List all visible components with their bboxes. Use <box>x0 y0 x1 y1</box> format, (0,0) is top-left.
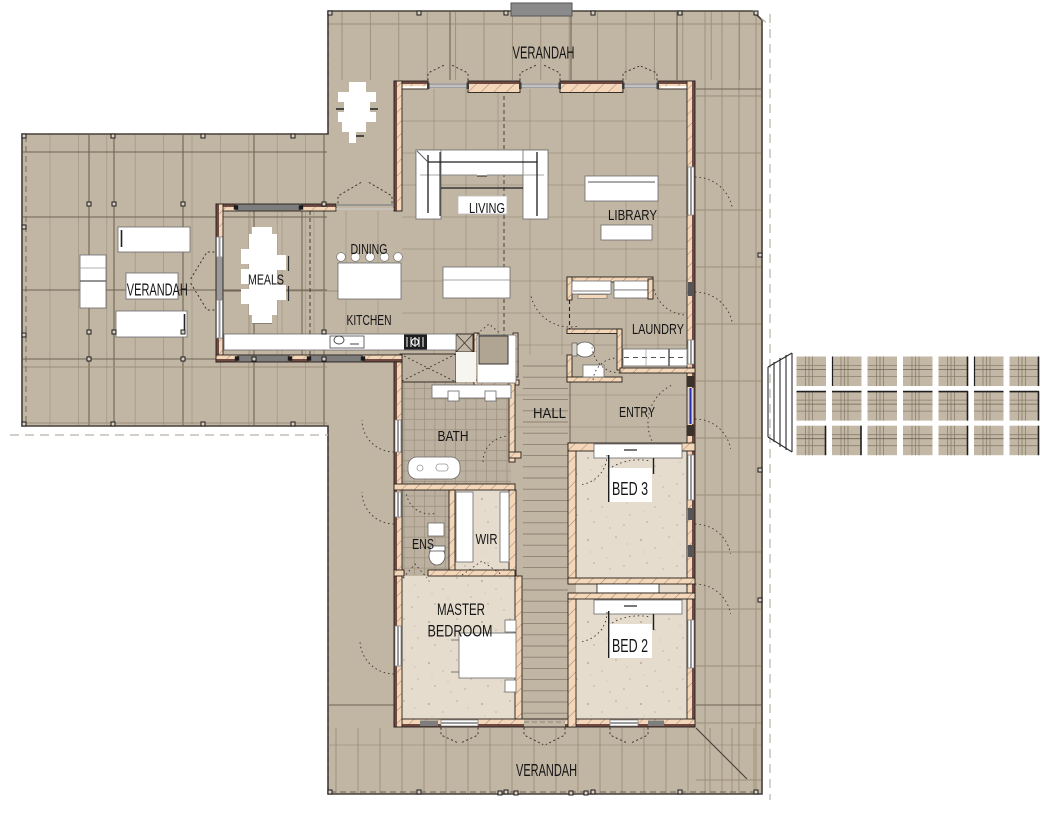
svg-text:LAUNDRY: LAUNDRY <box>632 321 684 338</box>
svg-text:BED 2: BED 2 <box>612 636 648 656</box>
svg-text:MEALS: MEALS <box>248 272 284 289</box>
svg-text:HALL: HALL <box>533 405 566 422</box>
svg-text:BEDROOM: BEDROOM <box>428 622 493 641</box>
svg-text:MASTER: MASTER <box>437 600 485 619</box>
svg-text:VERANDAH: VERANDAH <box>516 760 577 780</box>
svg-text:LIVING: LIVING <box>469 200 505 217</box>
svg-text:ENTRY: ENTRY <box>619 404 655 421</box>
svg-text:WIR: WIR <box>476 531 498 548</box>
svg-text:LIBRARY: LIBRARY <box>608 207 657 224</box>
svg-text:VERANDAH: VERANDAH <box>513 43 575 63</box>
svg-text:BATH: BATH <box>438 428 469 445</box>
svg-text:KITCHEN: KITCHEN <box>347 312 392 329</box>
svg-text:BED 3: BED 3 <box>612 479 648 499</box>
svg-text:ENS: ENS <box>412 536 434 553</box>
svg-text:VERANDAH: VERANDAH <box>127 280 188 300</box>
svg-text:DINING: DINING <box>351 241 388 258</box>
